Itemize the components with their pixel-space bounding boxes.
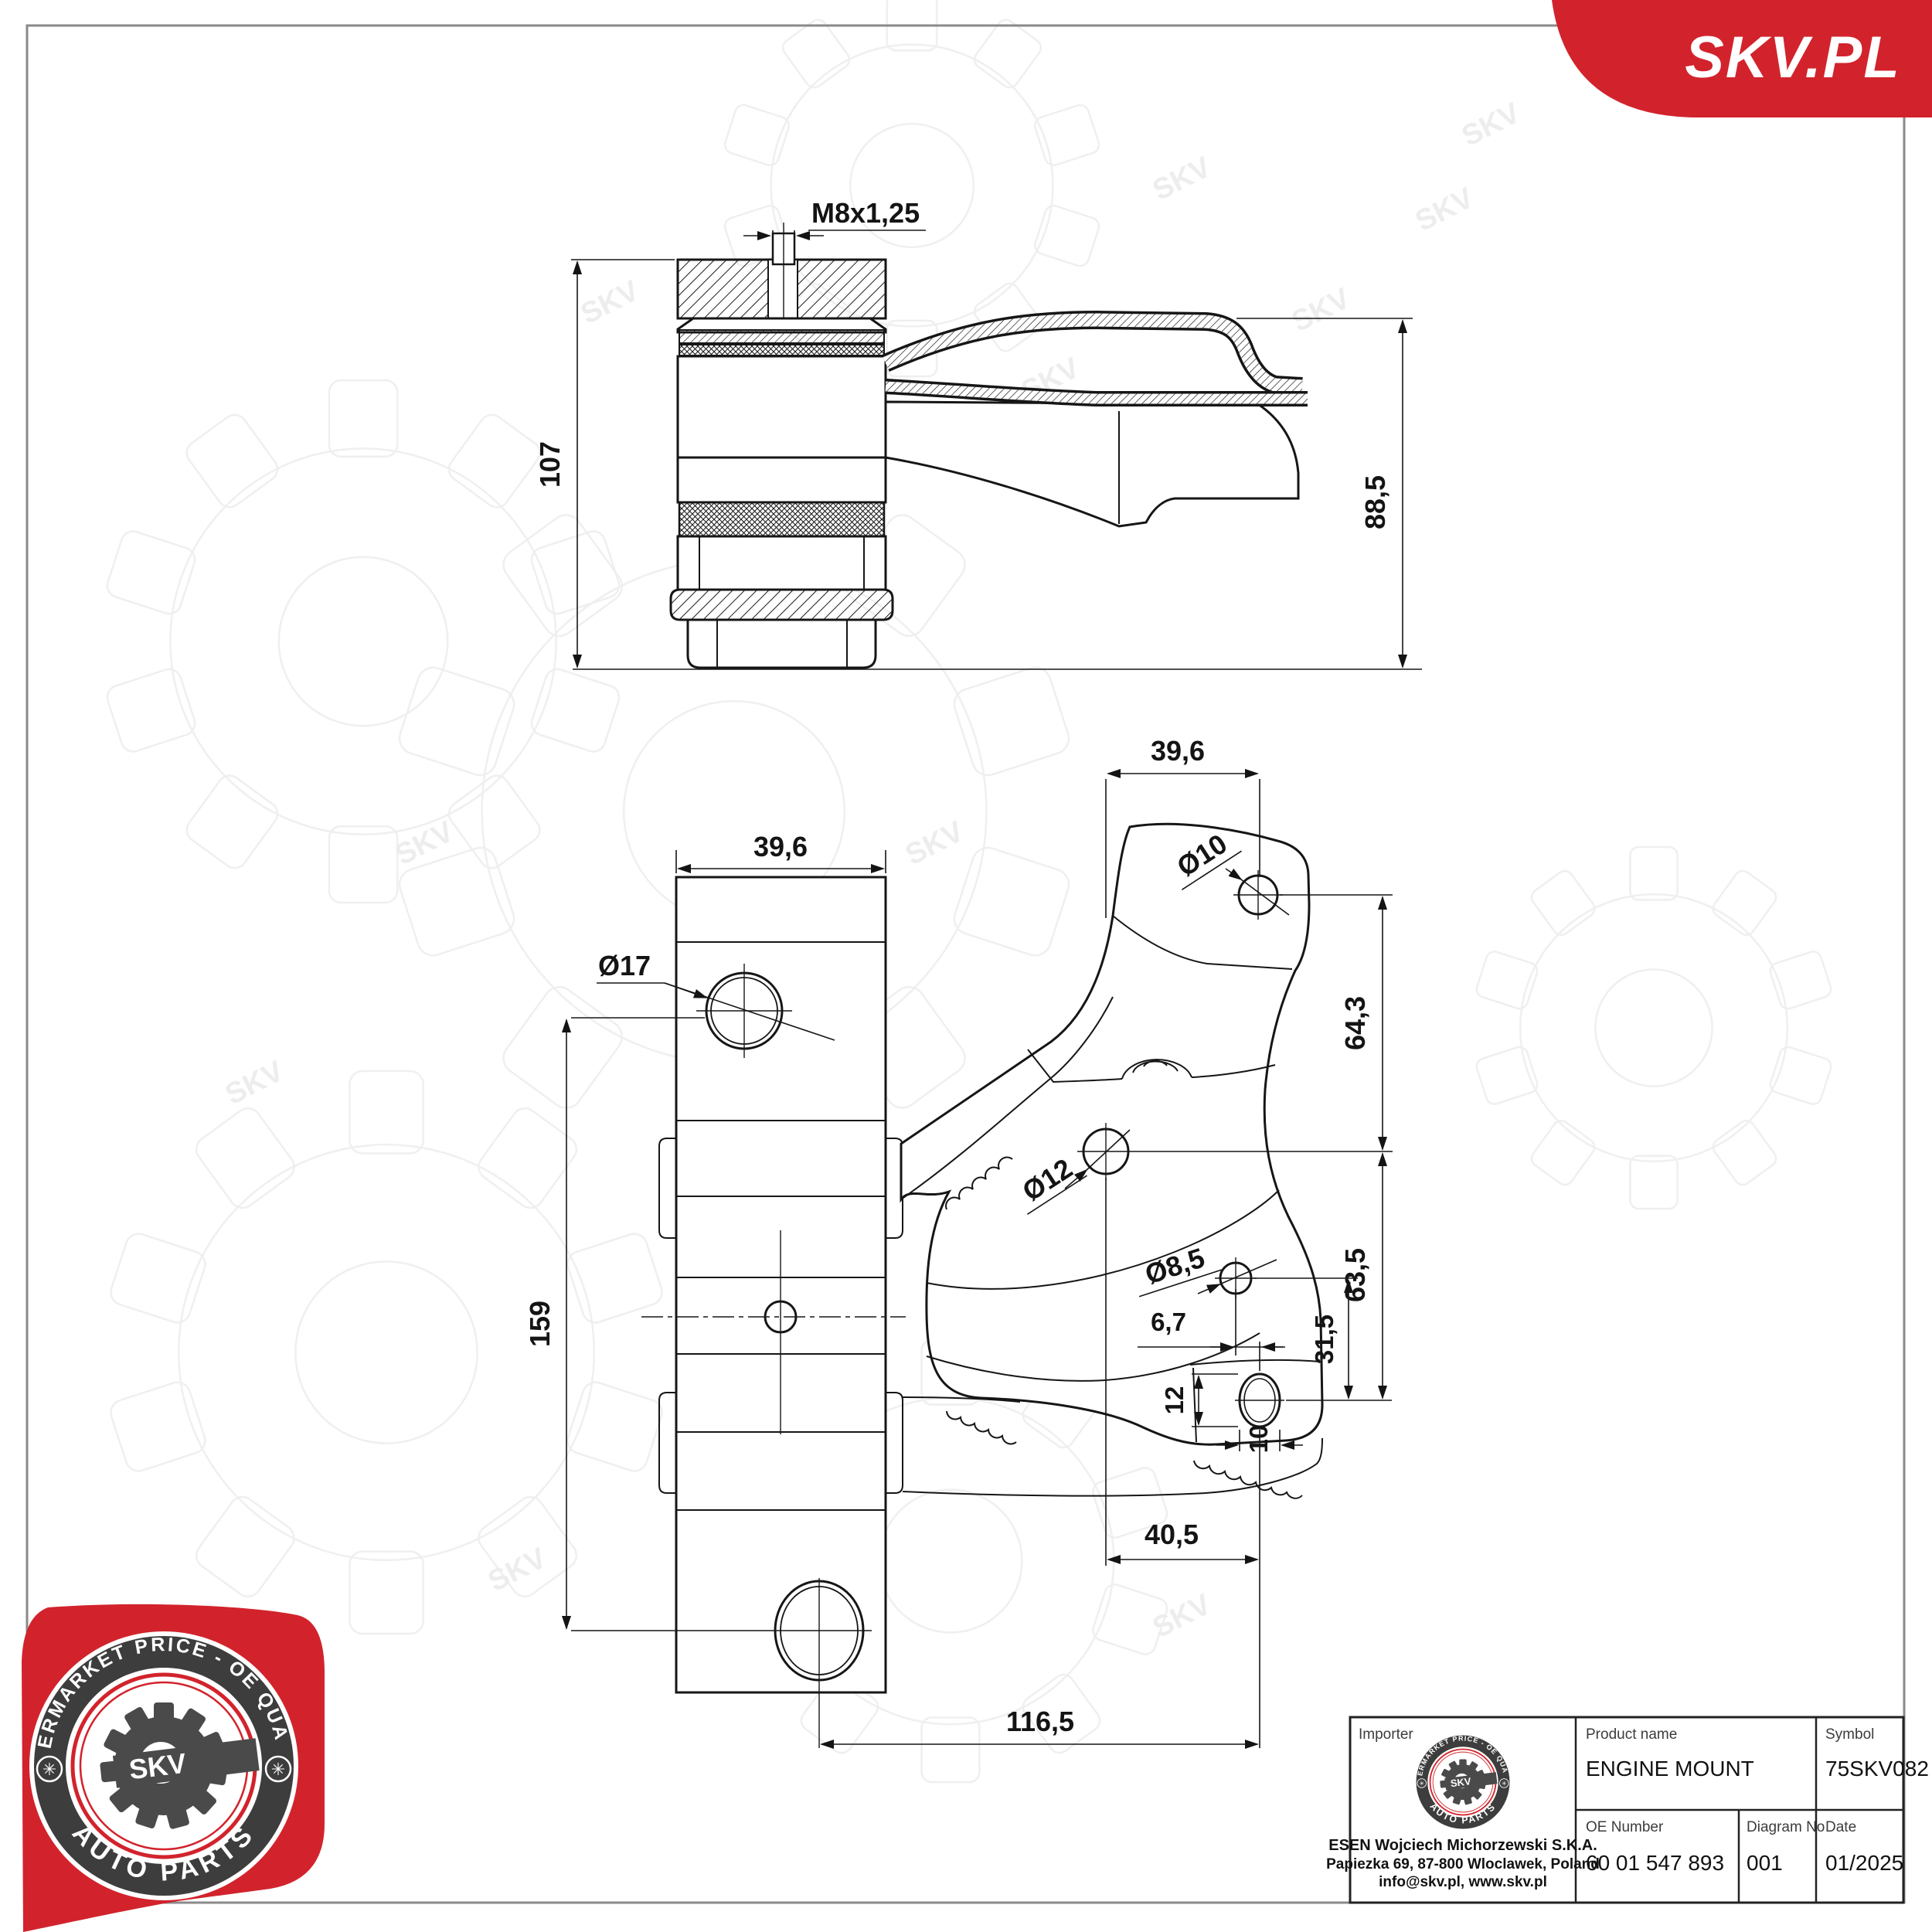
dim-643: 64,3 [1339,996,1371,1050]
brand-badge [22,1604,325,1932]
dim-315: 31,5 [1310,1315,1338,1364]
oe-label: OE Number [1586,1819,1664,1835]
diagram-value: 001 [1747,1851,1783,1875]
label-thread: M8x1,25 [811,197,920,229]
svg-text:SKV: SKV [220,1055,289,1111]
svg-text:SKV: SKV [576,274,645,331]
date-value: 01/2025 [1825,1851,1903,1875]
dim-159: 159 [524,1301,556,1347]
title-block: Importer ESEN Wojciech Michorzewski S.K.… [1326,1717,1929,1903]
brand-banner: SKV.PL [1552,0,1932,117]
dim-405: 40,5 [1145,1519,1199,1550]
dim-107: 107 [534,441,566,488]
dim-1165: 116,5 [1006,1706,1074,1737]
importer-address: Papiezka 69, 87-800 Wloclawek, Poland [1326,1856,1600,1872]
section-bottom-block [671,590,893,620]
product-value: ENGINE MOUNT [1586,1757,1754,1781]
dim-396-bracket: 39,6 [1151,735,1205,767]
oe-value: 60 01 547 893 [1586,1851,1724,1875]
svg-text:SKV: SKV [1148,1588,1216,1645]
date-label: Date [1825,1819,1856,1835]
importer-label: Importer [1359,1726,1413,1743]
svg-text:SKV: SKV [483,1542,552,1598]
svg-text:SKV: SKV [1287,282,1355,338]
svg-text:SKV: SKV [1410,182,1479,238]
symbol-label: Symbol [1825,1726,1874,1743]
banner-text: SKV.PL [1685,25,1901,90]
dim-10: 10 [1244,1425,1273,1454]
diagram-label: Diagram No [1747,1819,1825,1835]
label-hole-17: Ø17 [598,950,651,981]
section-arm-body [886,402,1298,526]
watermark-gears [104,0,1833,1782]
importer-name: ESEN Wojciech Michorzewski S.K.A. [1328,1837,1597,1854]
section-rubber-band [679,502,884,536]
section-band-knurled [679,345,884,355]
section-band-hatched [679,330,884,343]
engineering-drawing-sheet: SKV ✳ ✳ AFTERMARKET PRICE - OE QUALITY A… [0,0,1932,1932]
dim-885: 88,5 [1359,475,1391,529]
dim-396-front: 39,6 [753,831,808,862]
importer-contact: info@skv.pl, www.skv.pl [1379,1874,1547,1890]
svg-text:SKV: SKV [1148,151,1216,207]
dim-67: 6,7 [1151,1308,1186,1336]
section-arm-upper-sheet [886,320,1302,386]
svg-text:SKV: SKV [900,815,969,872]
section-arm-lower-sheet [886,386,1308,399]
dim-12: 12 [1160,1386,1189,1415]
view-side-section: 107 88,5 M8x1,25 [534,197,1422,669]
symbol-value: 75SKV082 [1825,1757,1929,1781]
dim-635: 63,5 [1339,1248,1371,1302]
svg-text:SKV: SKV [1457,97,1526,153]
product-label: Product name [1586,1726,1677,1743]
